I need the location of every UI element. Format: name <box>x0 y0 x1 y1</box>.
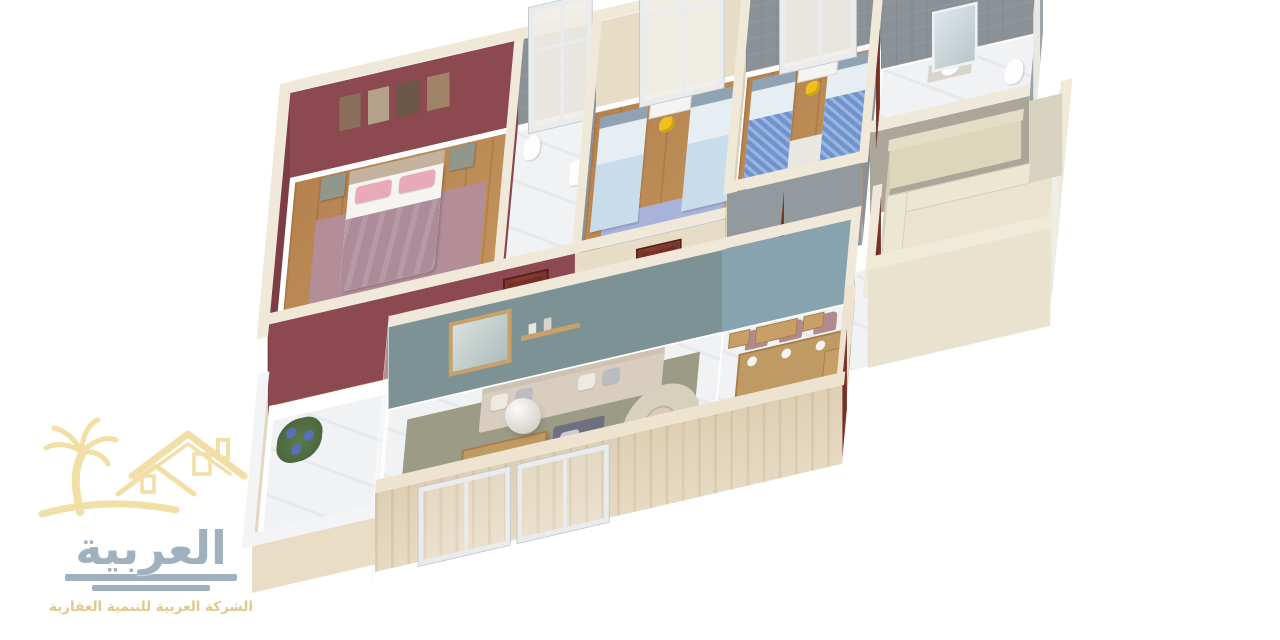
window-mullion <box>464 481 468 550</box>
company-logo: العربية الشركة العربية للتنمية العقارية <box>26 414 276 615</box>
window-mullion <box>681 0 685 92</box>
living-wall-decor <box>544 317 552 331</box>
kitchen-far-wall <box>1029 93 1062 183</box>
window-mullion <box>561 4 565 120</box>
window-mullion <box>818 0 822 61</box>
brand-name: العربية <box>26 524 276 572</box>
living-slider-frame-2 <box>517 444 608 543</box>
brand-tagline: الشركة العربية للتنمية العقارية <box>26 599 276 615</box>
window-mullion <box>563 458 567 527</box>
living-wall-mirror <box>449 308 512 377</box>
window-ensuite <box>529 0 592 133</box>
living-wall-decor <box>528 323 536 335</box>
logo-underline-bar <box>92 585 210 591</box>
page: العربية الشركة العربية للتنمية العقارية <box>0 0 1280 640</box>
logo-underline-bar <box>65 574 237 581</box>
pendant-ball-lamp <box>505 398 541 434</box>
bathroom-mirror <box>932 1 978 73</box>
window-mullion <box>1034 0 1040 54</box>
kids1-bed-a-blanket <box>590 154 644 232</box>
palm-and-houses-logo-mark <box>36 414 266 520</box>
living-slider-frame-1 <box>418 467 509 566</box>
